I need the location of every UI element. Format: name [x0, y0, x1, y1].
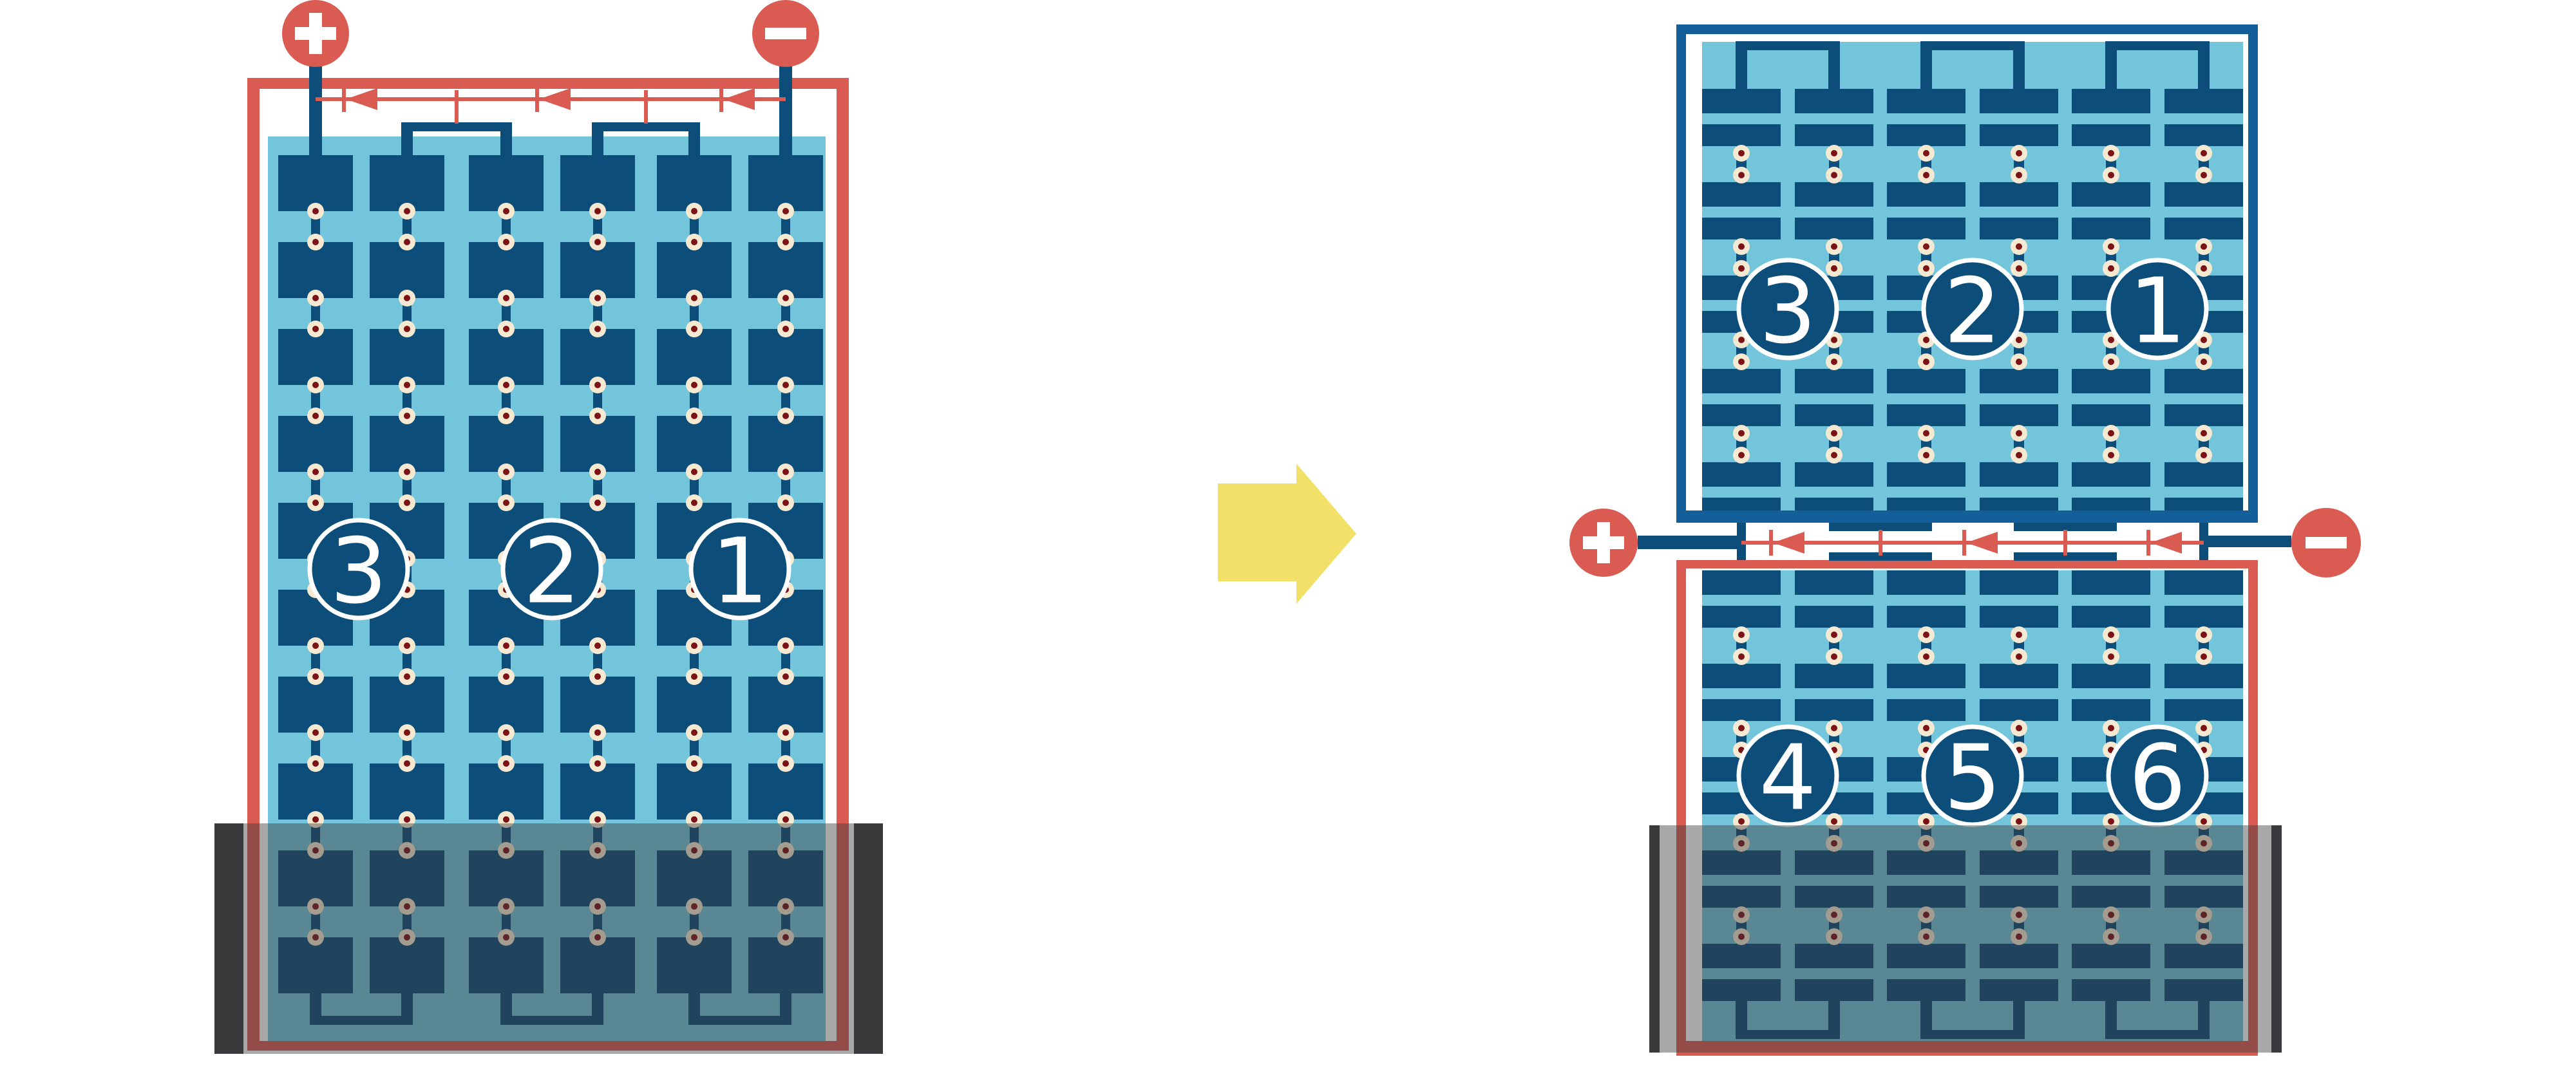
cell-plate [560, 242, 635, 298]
link-dot [2011, 260, 2027, 277]
link-dot-center [1831, 452, 1837, 458]
top-bridge-leg [2105, 50, 2117, 90]
link-dot-center [312, 295, 319, 301]
cell-plate [1702, 182, 1781, 207]
cell-plate [1887, 124, 1965, 146]
link-dot [777, 234, 794, 250]
link-dot [2103, 626, 2119, 643]
link-dot [498, 234, 515, 250]
link-dot-center [782, 760, 789, 767]
link-dot-center [1831, 818, 1837, 825]
link-dot [1826, 353, 1842, 370]
cell-plate [1980, 182, 2058, 207]
link-dot-center [503, 239, 509, 245]
cell-plate [2072, 182, 2150, 207]
link-dot [399, 724, 415, 741]
flow-arrowhead-left [1773, 532, 1804, 554]
cell-plate [2072, 404, 2150, 426]
link-dot [2011, 167, 2027, 183]
cell-plate [1702, 570, 1781, 595]
link-dot [2103, 167, 2119, 183]
link-dot-center [312, 642, 319, 649]
link-dot-center [691, 729, 697, 736]
link-dot-center [503, 326, 509, 332]
link-dot [2011, 353, 2027, 370]
top-bridge-bar [2105, 41, 2210, 50]
bridge-leg [500, 131, 512, 156]
cell-plate [1702, 124, 1781, 146]
cell-plate [1980, 404, 2058, 426]
link-dot [777, 755, 794, 772]
cell-number: 5 [1944, 726, 2001, 831]
cell-plate [2164, 182, 2243, 207]
positive-terminal [1569, 509, 1638, 577]
link-dot-center [782, 729, 789, 736]
flow-tick [342, 86, 346, 112]
link-dot [2103, 447, 2119, 464]
bridge-leg [592, 131, 603, 156]
cell-plate [2164, 664, 2243, 688]
bridge-bar [401, 122, 512, 131]
cell-plate [2164, 404, 2243, 426]
cell-plate [2164, 462, 2243, 487]
link-dot [1733, 425, 1750, 442]
cell-plate [1887, 182, 1965, 207]
link-dot-center [1738, 653, 1745, 660]
link-dot [589, 290, 606, 306]
cell-number: 4 [1759, 726, 1816, 831]
link-dot-center [2108, 653, 2114, 660]
link-dot-center [1831, 359, 1837, 365]
link-dot [2195, 626, 2212, 643]
cell-plate [1702, 369, 1781, 393]
link-dot-center [2201, 337, 2207, 343]
cell-number: 1 [711, 520, 768, 624]
flow-tick [1962, 530, 1966, 556]
link-dot-center [1738, 337, 1745, 343]
link-dot-center [1923, 430, 1929, 436]
link-dot-center [404, 500, 410, 506]
cell-plate [1795, 699, 1873, 721]
minus-bar [2306, 537, 2347, 548]
top-bridge-leg [2198, 50, 2210, 90]
cell-plate [1887, 606, 1965, 628]
link-dot [2011, 447, 2027, 464]
link-dot [589, 321, 606, 337]
holder-overlay [214, 823, 883, 1054]
link-dot-center [594, 413, 601, 419]
link-dot-center [1923, 172, 1929, 178]
link-dot-center [594, 295, 601, 301]
link-dot [2195, 447, 2212, 464]
cell-plate [1887, 570, 1965, 595]
link-dot [777, 637, 794, 654]
link-dot-center [1831, 243, 1837, 250]
cell-plate [1980, 124, 2058, 146]
link-dot-center [404, 295, 410, 301]
cell-plate [560, 677, 635, 733]
cell-plate [2072, 369, 2150, 393]
link-dot-center [1831, 632, 1837, 638]
link-dot-center [404, 382, 410, 388]
cell-plate [469, 416, 544, 472]
link-dot [686, 668, 703, 685]
flow-tick [1769, 530, 1773, 556]
top-bridge-bar [1920, 41, 2025, 50]
link-dot-center [404, 326, 410, 332]
link-dot [498, 464, 515, 480]
bridge-leg [401, 131, 413, 156]
right-battery: 321456 [1569, 24, 2361, 1056]
link-dot-center [2108, 337, 2114, 343]
link-dot-center [1923, 265, 1929, 272]
cell-plate [278, 155, 353, 211]
link-dot-center [2016, 150, 2022, 156]
link-dot-center [1923, 337, 1929, 343]
cell-plate [657, 677, 732, 733]
link-dot [307, 203, 324, 220]
holder-cap-left [1649, 825, 1660, 1053]
link-dot [307, 494, 324, 511]
link-dot-center [312, 500, 319, 506]
link-dot [1733, 353, 1750, 370]
link-dot [399, 464, 415, 480]
flow-line-group [1741, 530, 2204, 556]
link-dot-center [312, 469, 319, 475]
cell-plate [2072, 218, 2150, 239]
link-dot [2011, 425, 2027, 442]
link-dot [1826, 648, 1842, 665]
cell-plate [2072, 664, 2150, 688]
link-dot [2011, 648, 2027, 665]
link-dot-center [594, 642, 601, 649]
cell-plate [560, 416, 635, 472]
link-dot-center [691, 239, 697, 245]
link-dot [307, 668, 324, 685]
cell-plate [1795, 369, 1873, 393]
link-dot-center [594, 673, 601, 680]
link-dot-center [1831, 150, 1837, 156]
link-dot-center [1923, 243, 1929, 250]
link-dot-center [691, 816, 697, 823]
flow-tick [719, 86, 723, 112]
cell-plate [1795, 606, 1873, 628]
link-dot [498, 668, 515, 685]
link-dot [2103, 425, 2119, 442]
battery-diagram: 321321456 [0, 0, 2576, 1068]
positive-terminal [282, 0, 349, 67]
flow-diode [2146, 530, 2182, 556]
holder-cap-left [214, 823, 243, 1054]
link-dot-center [312, 239, 319, 245]
link-dot-center [2201, 632, 2207, 638]
cell-plate [560, 329, 635, 385]
cell-plate [370, 416, 444, 472]
link-dot-center [1831, 653, 1837, 660]
cell-plate [748, 677, 823, 733]
link-dot [498, 494, 515, 511]
link-dot-center [2108, 430, 2114, 436]
cell-number: 1 [2128, 259, 2186, 364]
link-dot-center [2108, 452, 2114, 458]
cell-plate [1702, 699, 1781, 721]
frame-right [2248, 24, 2258, 523]
link-dot-center [1831, 725, 1837, 731]
link-dot [498, 724, 515, 741]
cell-plate [1980, 664, 2058, 688]
link-dot [1733, 648, 1750, 665]
link-dot-center [1831, 172, 1837, 178]
holder-cap-right [854, 823, 883, 1054]
cell-plate [1980, 699, 2058, 721]
link-dot-center [594, 469, 601, 475]
link-dot-center [503, 642, 509, 649]
link-dot-center [404, 729, 410, 736]
link-dot [2195, 353, 2212, 370]
link-dot [1918, 626, 1935, 643]
link-dot-center [404, 208, 410, 214]
link-dot-center [691, 208, 697, 214]
cell-plate [1702, 404, 1781, 426]
link-dot-center [1923, 359, 1929, 365]
link-dot-center [1738, 632, 1745, 638]
cell-plate [278, 416, 353, 472]
tab-tick [2063, 530, 2067, 556]
cell-plate [560, 155, 635, 211]
link-dot-center [2016, 172, 2022, 178]
cell-plate [657, 764, 732, 820]
link-dot [1826, 145, 1842, 162]
link-dot [307, 377, 324, 393]
link-dot-center [1923, 632, 1929, 638]
link-dot-center [1738, 150, 1745, 156]
link-dot-center [503, 382, 509, 388]
link-dot [2103, 145, 2119, 162]
link-dot [2195, 720, 2212, 736]
frame-bottom [1676, 511, 2258, 523]
link-dot [1733, 167, 1750, 183]
link-dot-center [2016, 632, 2022, 638]
link-dot-center [312, 673, 319, 680]
link-dot [589, 377, 606, 393]
transform-arrow-head [1296, 464, 1356, 604]
link-dot-center [1923, 653, 1929, 660]
cell-plate [1795, 404, 1873, 426]
link-dot [777, 377, 794, 393]
flow-diode [342, 86, 377, 112]
flow-line-group [316, 86, 786, 124]
cell-plate [1795, 124, 1873, 146]
holder [1649, 825, 2282, 1053]
link-dot-center [691, 673, 697, 680]
link-dot [686, 637, 703, 654]
link-dot-center [503, 413, 509, 419]
cell-plate [1702, 664, 1781, 688]
cell-plate [1702, 218, 1781, 239]
cell-plate [370, 329, 444, 385]
link-dot-center [2201, 243, 2207, 250]
link-dot-center [2108, 359, 2114, 365]
cell-plate [2072, 124, 2150, 146]
link-dot [307, 321, 324, 337]
link-dot-center [2201, 653, 2207, 660]
cell-plate [1887, 369, 1965, 393]
cell-plate [1887, 404, 1965, 426]
flow-tick [535, 86, 539, 112]
link-dot [1826, 238, 1842, 255]
link-dot [2195, 648, 2212, 665]
top-bridge-leg [1828, 50, 1840, 90]
link-dot-center [503, 673, 509, 680]
negative-terminal [752, 0, 819, 67]
top-stack: 321 [1676, 24, 2258, 523]
link-dot-center [312, 760, 319, 767]
link-dot-center [404, 673, 410, 680]
link-dot-center [594, 816, 601, 823]
link-dot-center [2016, 725, 2022, 731]
link-dot [2195, 260, 2212, 277]
link-dot [589, 494, 606, 511]
flow-diode [1769, 530, 1804, 556]
link-dot [589, 203, 606, 220]
cell-plate [469, 677, 544, 733]
link-dot-center [782, 239, 789, 245]
minus-icon [765, 28, 806, 39]
link-dot [307, 755, 324, 772]
link-dot [2103, 353, 2119, 370]
link-dot [686, 234, 703, 250]
link-dot-center [691, 413, 697, 419]
link-dot [589, 464, 606, 480]
link-dot [2103, 648, 2119, 665]
link-dot-center [1923, 452, 1929, 458]
link-dot-center [2016, 337, 2022, 343]
cell-plate [1980, 218, 2058, 239]
flow-diode [719, 86, 755, 112]
link-dot-center [691, 642, 697, 649]
link-dot [1733, 447, 1750, 464]
cell-plate [2164, 369, 2243, 393]
link-dot [498, 321, 515, 337]
link-dot [2195, 238, 2212, 255]
flow-arrowhead-left [346, 88, 377, 110]
link-dot [399, 321, 415, 337]
link-dot-center [2108, 265, 2114, 272]
link-dot [307, 234, 324, 250]
cell-plate [2072, 570, 2150, 595]
link-dot-center [782, 326, 789, 332]
link-dot [686, 724, 703, 741]
link-dot-center [2108, 172, 2114, 178]
link-dot-center [594, 326, 601, 332]
top-bridge-leg [1736, 50, 1747, 90]
link-dot-center [2016, 818, 2022, 825]
link-dot-center [2016, 243, 2022, 250]
link-dot [1733, 720, 1750, 736]
link-dot-center [1738, 172, 1745, 178]
cell-plate [2164, 124, 2243, 146]
link-dot [399, 377, 415, 393]
link-dot [686, 408, 703, 424]
cell-plate [1980, 369, 2058, 393]
link-dot-center [691, 500, 697, 506]
cell-plate [2072, 606, 2150, 628]
cell-plate [1795, 498, 1873, 511]
cell-plate [370, 677, 444, 733]
plus-bar-vertical [309, 13, 322, 54]
link-dot [2011, 626, 2027, 643]
link-dot [2103, 260, 2119, 277]
bridge-drop-tick [644, 90, 648, 124]
link-dot-center [1923, 150, 1929, 156]
cell-plate [1887, 699, 1965, 721]
cell-plate [657, 155, 732, 211]
link-dot [1918, 425, 1935, 442]
link-dot [498, 755, 515, 772]
cell-plate [748, 242, 823, 298]
link-dot-center [2108, 243, 2114, 250]
cell-plate [748, 416, 823, 472]
link-dot-center [2108, 725, 2114, 731]
cell-plate [469, 764, 544, 820]
cell-plate [748, 329, 823, 385]
link-dot-center [404, 469, 410, 475]
link-dot-center [691, 382, 697, 388]
cell-plate [2072, 699, 2150, 721]
link-dot-center [2201, 359, 2207, 365]
top-bridge-leg [2013, 50, 2025, 90]
link-dot [1733, 145, 1750, 162]
link-dot [589, 755, 606, 772]
link-dot-center [782, 469, 789, 475]
link-dot-center [2108, 632, 2114, 638]
link-dot-center [2016, 452, 2022, 458]
link-dot-center [1831, 337, 1837, 343]
link-dot [1826, 447, 1842, 464]
link-dot-center [312, 816, 319, 823]
minus-icon [2306, 537, 2347, 548]
cell-plate [560, 764, 635, 820]
link-dot [686, 377, 703, 393]
cell-plate [370, 764, 444, 820]
link-dot-center [691, 326, 697, 332]
link-dot [1918, 260, 1935, 277]
cell-number: 2 [523, 520, 580, 624]
link-dot [686, 203, 703, 220]
negative-bus [2208, 536, 2291, 547]
link-dot-center [503, 295, 509, 301]
cell-plate [1887, 462, 1965, 487]
link-dot [1826, 260, 1842, 277]
link-dot-center [594, 729, 601, 736]
cell-plate [370, 242, 444, 298]
link-dot [1918, 145, 1935, 162]
cell-plate [469, 329, 544, 385]
link-dot-center [2016, 430, 2022, 436]
link-dot [2195, 145, 2212, 162]
link-dot [686, 464, 703, 480]
link-dot [589, 724, 606, 741]
link-dot-center [312, 208, 319, 214]
flow-arrowhead-left [2150, 532, 2182, 554]
link-dot [2011, 720, 2027, 736]
link-dot-center [594, 208, 601, 214]
cell-plate [2164, 89, 2243, 113]
cell-number: 3 [1759, 259, 1816, 364]
link-dot-center [2108, 150, 2114, 156]
link-dot-center [2201, 818, 2207, 825]
link-dot-center [404, 239, 410, 245]
